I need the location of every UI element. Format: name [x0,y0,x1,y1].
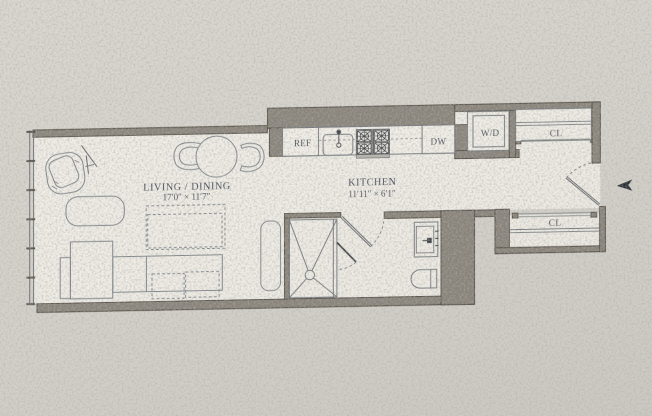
svg-text:REF: REF [294,138,311,148]
svg-text:11′11″ × 6′1″: 11′11″ × 6′1″ [348,188,396,199]
svg-text:CL: CL [550,129,563,139]
svg-text:W/D: W/D [481,128,500,138]
svg-text:CL: CL [549,219,562,229]
svg-text:17′0″ × 11′7″: 17′0″ × 11′7″ [163,191,211,202]
svg-text:DW: DW [431,137,447,147]
svg-text:KITCHEN: KITCHEN [348,177,396,189]
